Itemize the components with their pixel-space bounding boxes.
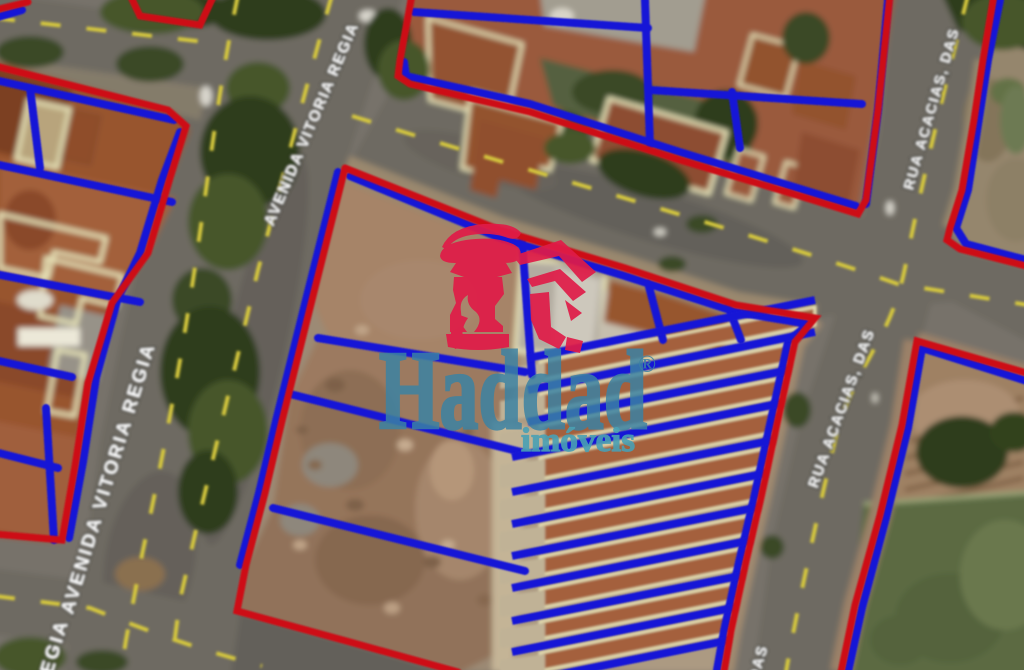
svg-text:®: ® [638,352,656,378]
svg-text:imóveis: imóveis [521,422,635,459]
